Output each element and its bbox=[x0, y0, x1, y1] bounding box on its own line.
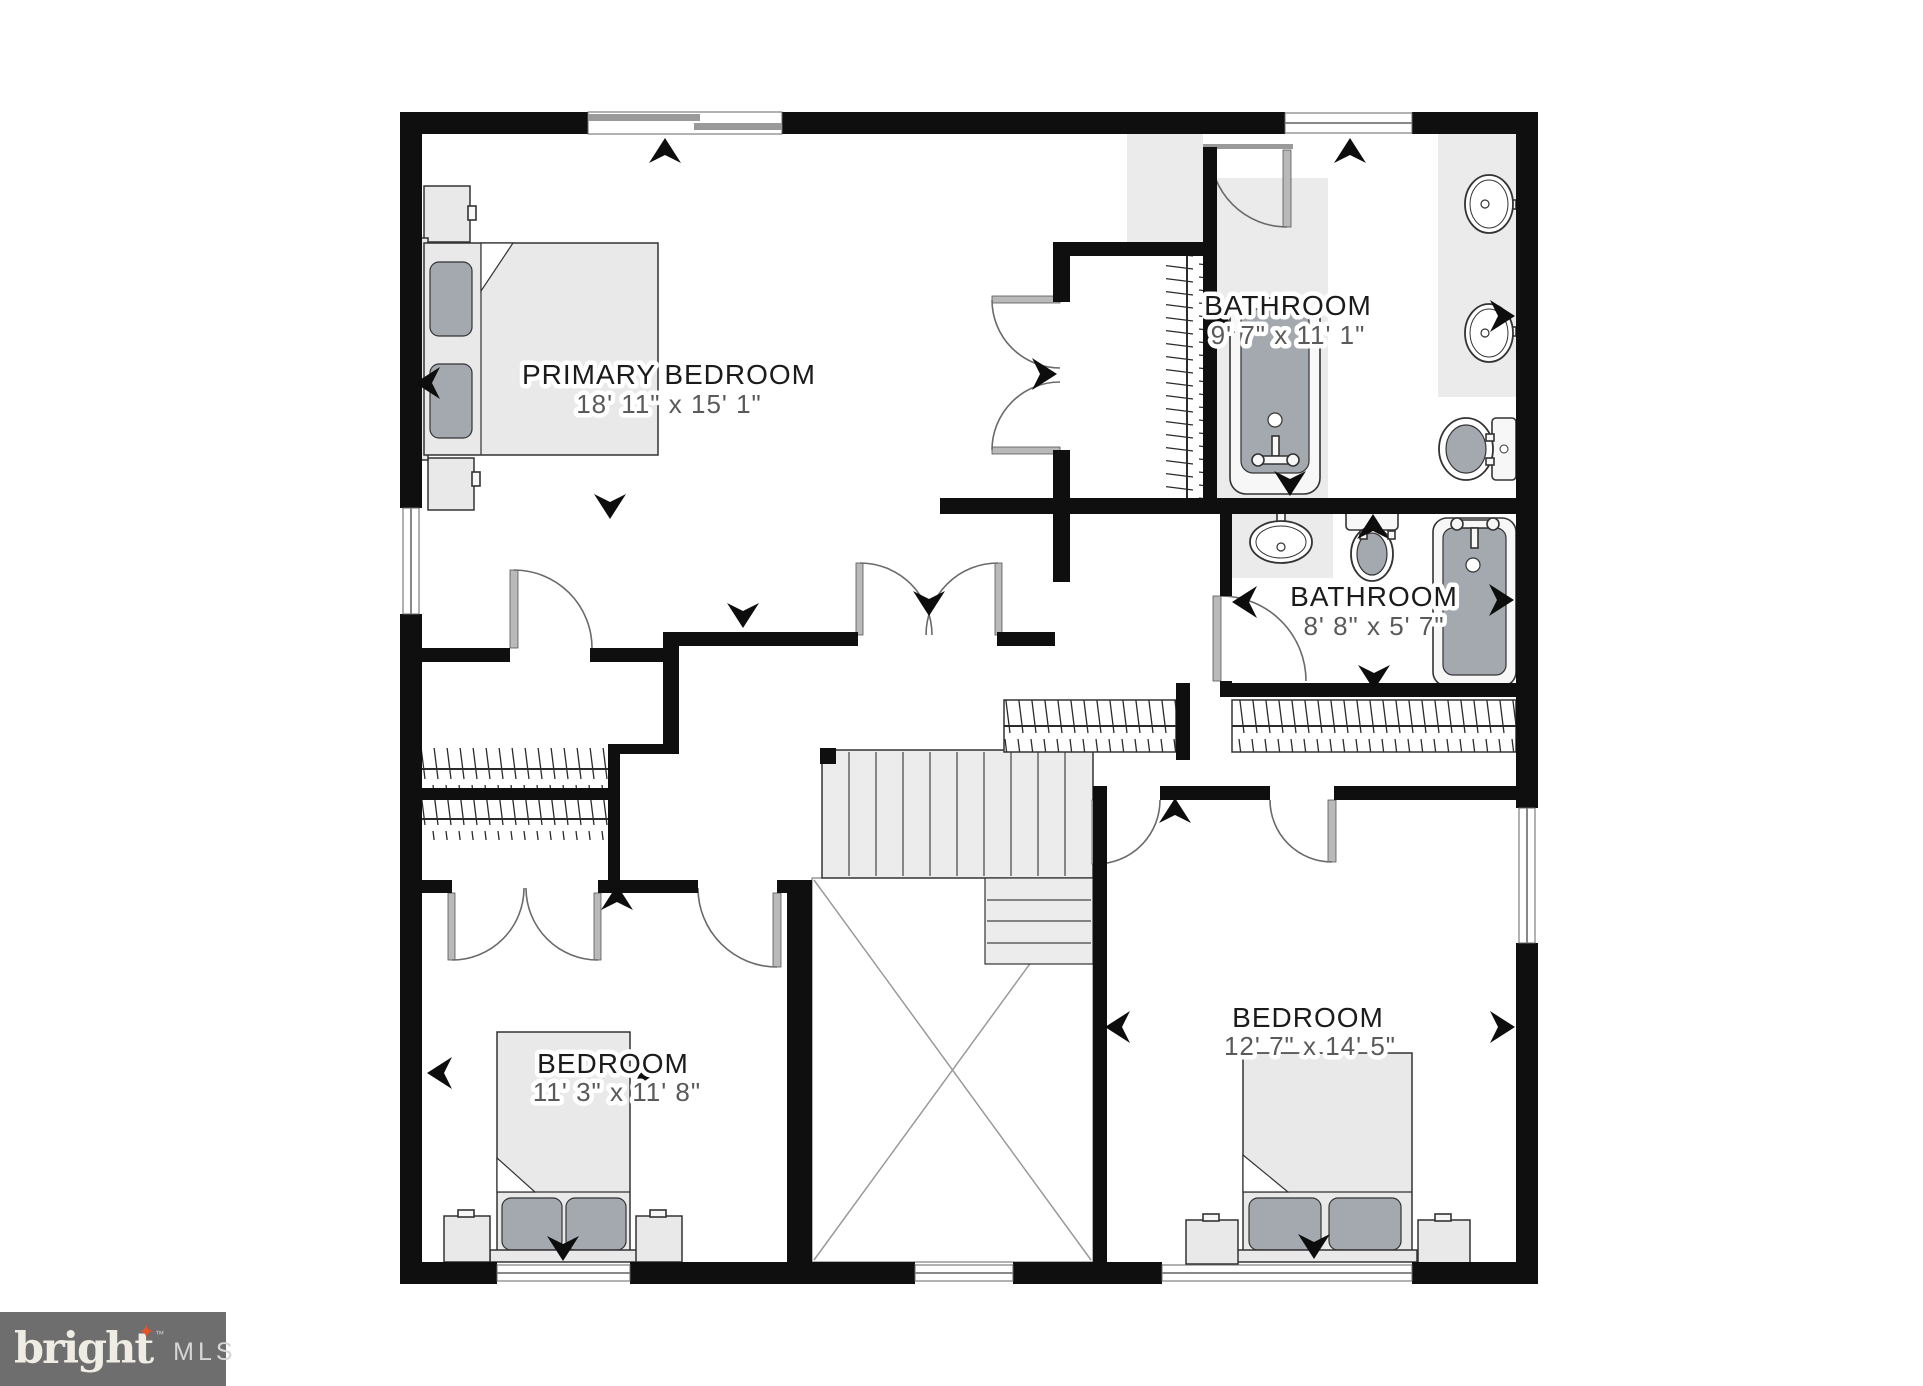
bathtub-faucet bbox=[1471, 528, 1478, 548]
window bbox=[1519, 808, 1535, 943]
room-dims: 12' 7" x 14' 5" bbox=[1224, 1031, 1396, 1061]
nightstand bbox=[444, 1216, 490, 1262]
door-leaf bbox=[1213, 596, 1221, 681]
left-arrow-icon bbox=[427, 1057, 452, 1089]
up-arrow-icon bbox=[1159, 798, 1191, 823]
sink-drain bbox=[1277, 543, 1285, 551]
bathtub-drain bbox=[1268, 413, 1282, 427]
logo-mls-text: MLS bbox=[173, 1338, 236, 1367]
brightmls-logo: bright ✦ ™ MLS bbox=[0, 1312, 226, 1386]
pillow bbox=[430, 262, 472, 336]
right-arrow-icon bbox=[1490, 1011, 1515, 1043]
bathtub-drain bbox=[1466, 558, 1480, 572]
door-leaf bbox=[992, 296, 1060, 303]
faucet-handle bbox=[1487, 518, 1499, 530]
nightstand-knob bbox=[1203, 1214, 1219, 1221]
door-leaf bbox=[594, 893, 601, 960]
door-swing bbox=[992, 382, 1060, 450]
room-dims: 9' 7" x 11' 1" bbox=[1211, 320, 1366, 350]
faucet-handle bbox=[1252, 454, 1264, 466]
up-arrow-icon bbox=[649, 138, 681, 163]
toilet-hinge bbox=[1388, 531, 1395, 539]
toilet-hinge bbox=[1486, 458, 1494, 465]
room-dims: 8' 8" x 5' 7" bbox=[1303, 611, 1444, 641]
bath1-entry-mat bbox=[1127, 134, 1203, 244]
toilet-bowl bbox=[1446, 425, 1486, 473]
room-label: PRIMARY BEDROOM bbox=[522, 359, 816, 390]
door-swing bbox=[698, 888, 777, 967]
toilet-hinge bbox=[1486, 434, 1494, 441]
door-swing bbox=[452, 888, 524, 960]
window bbox=[915, 1265, 1013, 1281]
door-leaf bbox=[448, 893, 455, 960]
pillow bbox=[1329, 1198, 1401, 1250]
nightstand-knob bbox=[650, 1210, 666, 1217]
bathtub-faucet bbox=[1272, 436, 1279, 456]
sink-drain bbox=[1481, 200, 1489, 208]
door-leaf bbox=[1283, 150, 1291, 227]
room-label: BEDROOM bbox=[537, 1048, 689, 1079]
logo-bright-text: bright bbox=[14, 1328, 152, 1371]
toilet-flush bbox=[1500, 445, 1508, 453]
door-leaf bbox=[510, 570, 518, 648]
floor-plan-drawing: PRIMARY BEDROOM 18' 11" x 15' 1" BATHROO… bbox=[0, 0, 1923, 1386]
down-arrow-icon bbox=[913, 591, 945, 616]
nightstand bbox=[636, 1216, 682, 1262]
up-arrow-icon bbox=[1334, 138, 1366, 163]
logo-star-icon: ✦ bbox=[138, 1321, 154, 1344]
primary-bedroom-furniture bbox=[420, 186, 658, 510]
nightstand bbox=[424, 186, 470, 242]
door-leaf bbox=[773, 893, 781, 967]
door-leaf bbox=[1328, 800, 1336, 862]
window bbox=[1162, 1265, 1412, 1281]
room-label: BATHROOM bbox=[1204, 290, 1372, 321]
nightstand bbox=[1186, 1220, 1238, 1264]
right-arrow-icon bbox=[1032, 358, 1057, 390]
door-leaf bbox=[856, 563, 863, 635]
sink-icon bbox=[1250, 521, 1312, 563]
left-arrow-icon bbox=[1105, 1011, 1130, 1043]
floor-plan-page: PRIMARY BEDROOM 18' 11" x 15' 1" BATHROO… bbox=[0, 0, 1923, 1386]
sink-drain bbox=[1481, 329, 1489, 337]
window bbox=[403, 508, 419, 614]
faucet-handle bbox=[1287, 454, 1299, 466]
window bbox=[497, 1265, 630, 1281]
room-label: BEDROOM bbox=[1232, 1002, 1384, 1033]
stair-newel-post bbox=[820, 748, 836, 764]
door-swing bbox=[992, 300, 1060, 368]
door-swing bbox=[1270, 800, 1332, 862]
nightstand-knob bbox=[1435, 1214, 1451, 1221]
down-arrow-icon bbox=[727, 603, 759, 628]
room-dims: 11' 3" x 11' 8" bbox=[533, 1077, 701, 1107]
door-leaf bbox=[992, 447, 1060, 454]
nightstand-knob bbox=[458, 1210, 474, 1217]
room-dims: 18' 11" x 15' 1" bbox=[576, 389, 762, 419]
staircase bbox=[812, 748, 1093, 1262]
down-arrow-icon bbox=[594, 494, 626, 519]
faucet-handle bbox=[1451, 518, 1463, 530]
room-label: BATHROOM bbox=[1290, 581, 1458, 612]
nightstand bbox=[428, 458, 474, 510]
bed-footboard bbox=[1236, 1250, 1417, 1262]
door-leaf bbox=[995, 563, 1002, 635]
door-swing bbox=[514, 570, 592, 648]
nightstand-knob bbox=[468, 206, 476, 220]
window bbox=[588, 112, 782, 134]
logo-tm-mark: ™ bbox=[155, 1329, 164, 1339]
nightstand-knob bbox=[472, 472, 480, 486]
door-swing bbox=[526, 888, 598, 960]
pillow bbox=[430, 364, 472, 438]
bedroom2-furniture bbox=[1186, 1053, 1470, 1264]
window bbox=[1285, 113, 1412, 133]
nightstand bbox=[1418, 1220, 1470, 1264]
